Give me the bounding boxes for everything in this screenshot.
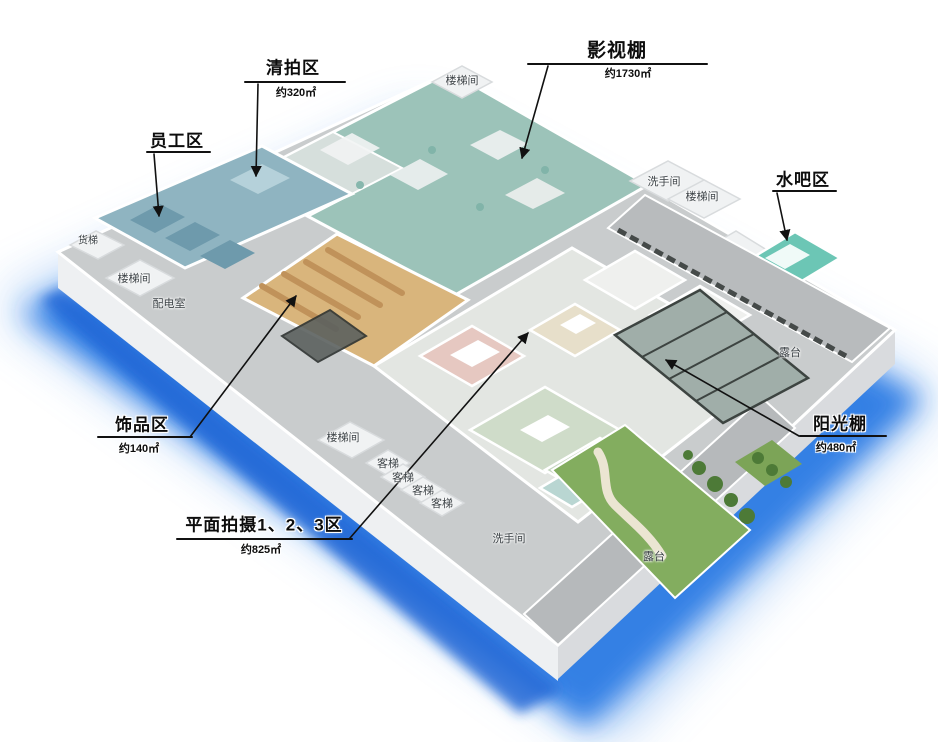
label-passenger-lift-4: 客梯 [431, 495, 453, 511]
callout-clear-shoot-area: 约320㎡ [276, 84, 316, 100]
label-terrace-right: 露台 [779, 344, 801, 360]
label-power-room: 配电室 [153, 295, 186, 311]
label-stairwell-top: 楼梯间 [446, 72, 479, 88]
callout-sunroom: 阳光棚 [813, 410, 867, 435]
label-stairwell-walkway: 楼梯间 [327, 429, 360, 445]
label-freight-elevator: 货梯 [78, 232, 98, 247]
callout-film-studio: 影视棚 [587, 36, 647, 63]
callout-accessories-area: 约140㎡ [119, 440, 159, 456]
label-terrace-bottom: 露台 [643, 548, 665, 564]
label-stairwell-topright: 楼梯间 [686, 188, 719, 204]
label-restroom-bottom: 洗手间 [493, 530, 526, 546]
label-passenger-lift-2: 客梯 [392, 469, 414, 485]
label-stairwell-left: 楼梯间 [118, 270, 151, 286]
building-illustration [0, 0, 938, 742]
callout-sunroom-area: 约480㎡ [816, 439, 856, 455]
callout-photo-sets: 平面拍摄1、2、3区 [185, 511, 342, 536]
callout-water-bar: 水吧区 [776, 166, 830, 191]
callout-staff-area: 员工区 [150, 127, 204, 152]
label-restroom-topright: 洗手间 [648, 173, 681, 189]
callout-film-studio-area: 约1730㎡ [605, 65, 651, 81]
callout-photo-sets-area: 约825㎡ [241, 541, 281, 557]
callout-clear-shoot: 清拍区 [266, 54, 320, 79]
floorplan-scene: 影视棚 约1730㎡ 清拍区 约320㎡ 员工区 水吧区 饰品区 约140㎡ 平… [0, 0, 938, 742]
callout-accessories: 饰品区 [115, 411, 169, 436]
